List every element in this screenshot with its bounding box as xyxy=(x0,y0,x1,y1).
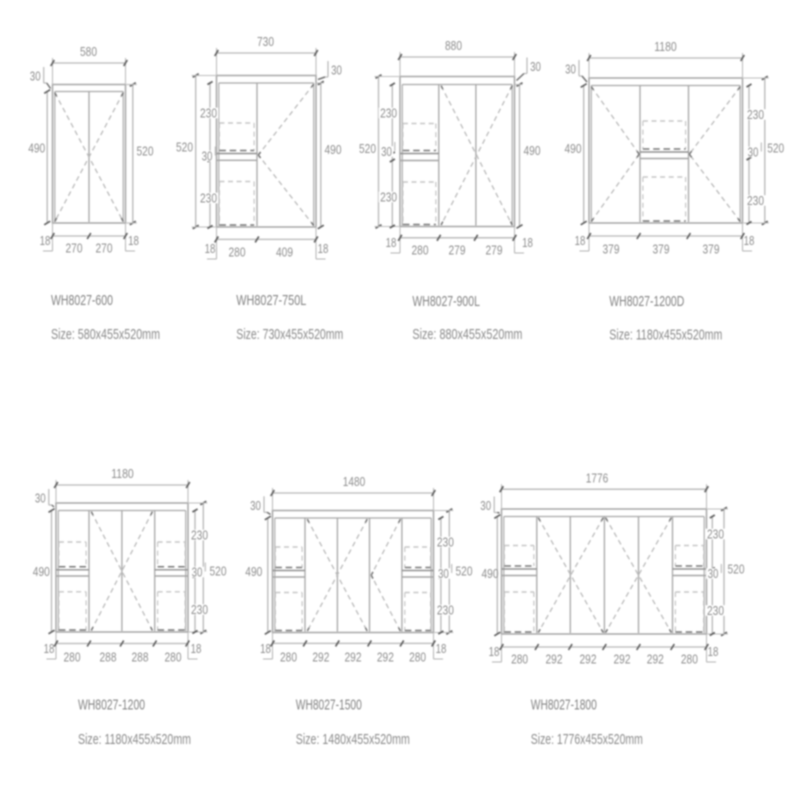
svg-text:520: 520 xyxy=(767,142,784,156)
svg-text:230: 230 xyxy=(191,529,208,543)
svg-text:Size: 880x455x520mm: Size: 880x455x520mm xyxy=(412,327,522,343)
svg-text:280: 280 xyxy=(64,651,81,665)
svg-text:880: 880 xyxy=(445,39,462,53)
svg-text:490: 490 xyxy=(565,142,582,156)
svg-text:30: 30 xyxy=(480,499,491,513)
svg-text:18: 18 xyxy=(575,234,586,248)
svg-text:18: 18 xyxy=(260,642,271,656)
svg-text:Size: 1480x455x520mm: Size: 1480x455x520mm xyxy=(296,732,410,748)
svg-text:280: 280 xyxy=(280,651,297,665)
svg-text:490: 490 xyxy=(524,144,541,158)
svg-text:30: 30 xyxy=(748,146,759,160)
svg-text:288: 288 xyxy=(132,651,149,665)
svg-text:280: 280 xyxy=(511,653,528,667)
svg-text:520: 520 xyxy=(456,565,473,579)
svg-text:18: 18 xyxy=(318,242,329,256)
svg-text:230: 230 xyxy=(191,603,208,617)
svg-text:730: 730 xyxy=(257,35,274,49)
svg-text:WH8027-1200: WH8027-1200 xyxy=(78,697,145,713)
svg-text:292: 292 xyxy=(580,653,597,667)
svg-text:18: 18 xyxy=(489,645,500,659)
svg-text:WH8027-900L: WH8027-900L xyxy=(412,294,480,310)
svg-text:230: 230 xyxy=(707,604,724,618)
svg-text:30: 30 xyxy=(30,70,41,84)
svg-text:Size: 1180x455x520mm: Size: 1180x455x520mm xyxy=(78,732,191,748)
svg-text:490: 490 xyxy=(325,143,342,157)
svg-text:292: 292 xyxy=(614,653,631,667)
svg-text:379: 379 xyxy=(703,243,720,257)
svg-text:30: 30 xyxy=(438,567,449,581)
svg-text:18: 18 xyxy=(191,642,202,656)
svg-text:270: 270 xyxy=(96,242,113,256)
svg-text:230: 230 xyxy=(437,604,454,618)
svg-text:379: 379 xyxy=(653,243,670,257)
svg-text:30: 30 xyxy=(250,499,261,513)
svg-text:520: 520 xyxy=(359,142,376,156)
svg-text:230: 230 xyxy=(437,536,454,550)
svg-text:1180: 1180 xyxy=(654,40,677,54)
svg-text:18: 18 xyxy=(205,242,216,256)
svg-text:18: 18 xyxy=(436,642,447,656)
svg-text:230: 230 xyxy=(707,528,724,542)
svg-text:279: 279 xyxy=(486,244,503,258)
svg-text:490: 490 xyxy=(28,142,45,156)
svg-text:280: 280 xyxy=(412,244,429,258)
svg-text:230: 230 xyxy=(747,194,764,208)
svg-text:520: 520 xyxy=(137,145,154,159)
svg-text:292: 292 xyxy=(647,653,664,667)
svg-text:292: 292 xyxy=(377,651,394,665)
svg-text:18: 18 xyxy=(744,234,755,248)
svg-text:230: 230 xyxy=(200,192,217,206)
svg-text:379: 379 xyxy=(603,243,620,257)
svg-text:WH8027-600: WH8027-600 xyxy=(51,293,113,309)
svg-text:270: 270 xyxy=(66,242,83,256)
svg-text:490: 490 xyxy=(245,565,262,579)
svg-text:WH8027-1800: WH8027-1800 xyxy=(531,697,597,713)
svg-text:520: 520 xyxy=(176,141,193,155)
svg-text:280: 280 xyxy=(165,651,182,665)
svg-text:230: 230 xyxy=(380,191,397,205)
svg-text:WH8027-750L: WH8027-750L xyxy=(236,293,306,309)
svg-text:Size: 1776x455x520mm: Size: 1776x455x520mm xyxy=(531,732,643,748)
svg-text:230: 230 xyxy=(747,108,764,122)
svg-text:292: 292 xyxy=(345,651,362,665)
svg-text:280: 280 xyxy=(681,653,698,667)
svg-text:520: 520 xyxy=(210,564,227,578)
svg-text:580: 580 xyxy=(80,45,97,59)
svg-text:230: 230 xyxy=(380,107,397,121)
svg-text:230: 230 xyxy=(200,107,217,121)
svg-text:30: 30 xyxy=(192,566,203,580)
svg-text:279: 279 xyxy=(449,244,466,258)
svg-text:30: 30 xyxy=(565,63,576,77)
svg-text:18: 18 xyxy=(386,236,397,250)
svg-text:18: 18 xyxy=(522,236,533,250)
svg-text:292: 292 xyxy=(546,653,563,667)
svg-text:292: 292 xyxy=(312,651,329,665)
svg-text:1776: 1776 xyxy=(586,471,609,485)
svg-text:18: 18 xyxy=(44,642,55,656)
svg-text:520: 520 xyxy=(728,563,745,577)
svg-text:30: 30 xyxy=(530,60,541,74)
svg-text:288: 288 xyxy=(100,651,117,665)
svg-text:30: 30 xyxy=(708,567,719,581)
svg-text:30: 30 xyxy=(331,64,342,78)
svg-text:Size: 730x455x520mm: Size: 730x455x520mm xyxy=(236,327,343,343)
svg-text:18: 18 xyxy=(40,234,51,248)
svg-text:1180: 1180 xyxy=(111,467,134,481)
svg-text:490: 490 xyxy=(482,567,499,581)
svg-text:409: 409 xyxy=(276,246,293,260)
svg-text:30: 30 xyxy=(202,150,213,164)
svg-text:1480: 1480 xyxy=(343,475,366,489)
svg-text:18: 18 xyxy=(708,645,719,659)
svg-text:490: 490 xyxy=(33,565,50,579)
svg-text:30: 30 xyxy=(381,145,392,159)
svg-text:280: 280 xyxy=(229,246,246,260)
svg-text:WH8027-1200D: WH8027-1200D xyxy=(609,294,684,310)
svg-text:Size: 1180x455x520mm: Size: 1180x455x520mm xyxy=(609,328,722,344)
svg-text:18: 18 xyxy=(128,234,139,248)
svg-text:280: 280 xyxy=(409,651,426,665)
svg-text:30: 30 xyxy=(35,492,46,506)
svg-text:WH8027-1500: WH8027-1500 xyxy=(296,697,362,713)
svg-text:Size: 580x455x520mm: Size: 580x455x520mm xyxy=(51,327,160,343)
